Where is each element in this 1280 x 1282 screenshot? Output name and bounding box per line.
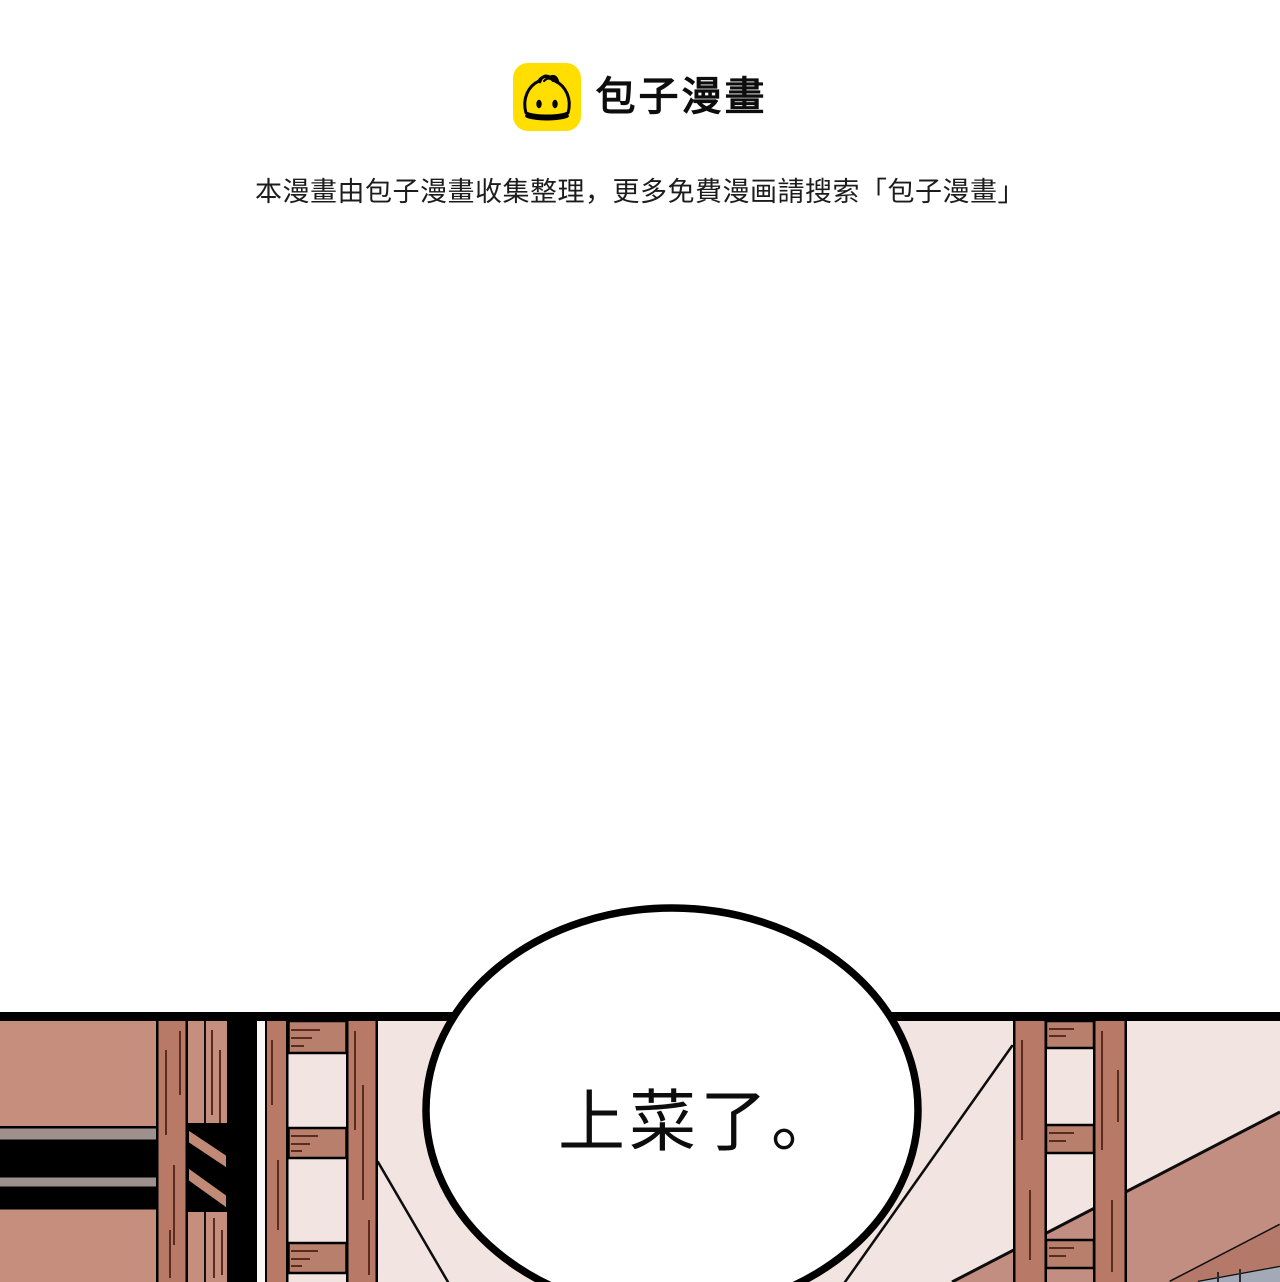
comic-panel: 上菜了。 [0,900,1280,1282]
baozi-bun-icon [513,63,581,131]
baozi-bun-drawing [513,63,581,131]
brand-name: 包子漫畫 [596,77,768,117]
speech-bubble-text: 上菜了。 [558,1083,842,1161]
comic-page: 包子漫畫 本漫畫由包子漫畫收集整理，更多免費漫画請搜索「包子漫畫」 [0,0,1280,1282]
left-shelf [0,1021,266,1282]
notice-text: 本漫畫由包子漫畫收集整理，更多免費漫画請搜索「包子漫畫」 [0,170,1280,209]
brand-header: 包子漫畫 [0,63,1280,131]
speech-bubble: 上菜了。 [426,908,918,1282]
